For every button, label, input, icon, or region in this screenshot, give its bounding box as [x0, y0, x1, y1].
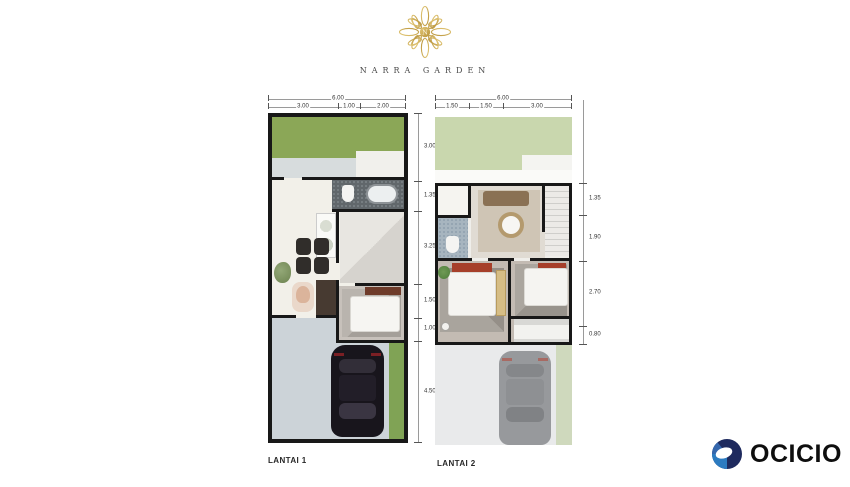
ocicio-logo: OCICIO: [711, 438, 842, 470]
bathtub: [366, 184, 398, 204]
car-windshield: [506, 407, 544, 422]
dining-chair: [314, 257, 329, 274]
wardrobe: [496, 270, 506, 316]
wall: [508, 261, 511, 342]
stairs-area: [340, 212, 404, 283]
sofa: [483, 191, 529, 206]
tick: [469, 103, 470, 109]
plan2-dim-top-3: 3.00: [530, 104, 544, 111]
setback-strip: [435, 170, 572, 183]
dining-chair: [314, 238, 329, 255]
floor-2-building: [435, 183, 572, 345]
tick: [414, 318, 422, 319]
car-roof: [506, 379, 544, 405]
plant: [274, 262, 291, 283]
staircase: [545, 186, 569, 256]
side-garden-strip: [389, 343, 404, 439]
car-taillight: [334, 353, 344, 356]
bathroom-1: [332, 180, 404, 209]
tick: [571, 103, 572, 109]
round-table: [498, 212, 524, 238]
tick: [579, 261, 587, 262]
double-bed: [448, 272, 496, 316]
plan2-dim-right-4: 0.80: [588, 332, 602, 339]
logo-monogram: N: [422, 28, 428, 36]
armchair-cushion: [296, 286, 310, 303]
cabinet: [316, 280, 336, 316]
car-top-view: [331, 345, 384, 437]
floor-1-label: LANTAI 1: [268, 456, 307, 465]
plan2-dim-right-line: [583, 100, 584, 345]
toilet: [446, 236, 459, 253]
tick: [405, 103, 406, 109]
narra-garden-flower-icon: N: [393, 4, 457, 62]
double-bed: [524, 268, 568, 306]
armchair: [292, 282, 314, 312]
stool: [441, 322, 450, 331]
floor-2-label: LANTAI 2: [437, 459, 476, 468]
wall: [272, 315, 296, 318]
ocicio-mark-icon: [711, 438, 743, 470]
tick: [579, 183, 587, 184]
plan2-dim-top-2: 1.50: [479, 104, 493, 111]
roof-notch: [522, 155, 572, 170]
double-bed: [350, 296, 400, 332]
car-roof: [339, 375, 376, 401]
wall: [355, 283, 404, 286]
tick: [579, 344, 587, 345]
tick: [268, 95, 269, 101]
floor-plan-2: [435, 117, 572, 445]
logo-title: NARRA GARDEN: [325, 66, 525, 75]
car-windshield: [339, 403, 376, 419]
tick: [268, 103, 269, 109]
plan1-dim-top-1: 3.00: [296, 104, 310, 111]
plan2-dim-top-1: 1.50: [445, 104, 459, 111]
bathroom-2: [438, 218, 468, 258]
plan1-dim-top-3: 2.00: [376, 104, 390, 111]
car-taillight: [538, 358, 548, 361]
car-taillight: [371, 353, 381, 356]
tick: [414, 181, 422, 182]
tick: [435, 95, 436, 101]
tick: [360, 103, 361, 109]
car-taillight: [502, 358, 512, 361]
tick: [414, 442, 422, 443]
tick: [579, 326, 587, 327]
plan2-dim-right-3: 2.70: [588, 290, 602, 297]
wall: [336, 209, 339, 263]
tick: [405, 95, 406, 101]
plan1-dim-total: 6.00: [331, 96, 345, 103]
plan2-dim-total: 6.00: [496, 96, 510, 103]
tick: [435, 103, 436, 109]
car-rear-window: [506, 364, 544, 377]
plan1-dim-top-2: 1.00: [342, 104, 356, 111]
ghost-car-top-view: [499, 351, 551, 445]
floor-plan-1: [268, 113, 408, 443]
wall: [316, 315, 336, 318]
tick: [571, 95, 572, 101]
tick: [414, 341, 422, 342]
balcony-deck: [514, 325, 569, 339]
tick: [503, 103, 504, 109]
plan1-dim-right-line: [418, 113, 419, 443]
wall: [336, 340, 404, 343]
tick: [414, 211, 422, 212]
tick: [338, 103, 339, 109]
tick: [414, 284, 422, 285]
brand-name: OCICIO: [750, 438, 842, 470]
plan2-dim-right-1: 1.35: [588, 196, 602, 203]
toilet: [342, 185, 354, 202]
floorplan-sheet: N NARRA GARDEN 6.00 3.00 1.00 2.00: [0, 0, 850, 487]
wall: [542, 186, 545, 232]
closet-room: [438, 186, 468, 215]
ghost-garden-strip: [556, 345, 572, 445]
dining-chair: [296, 257, 311, 274]
terrace: [356, 151, 404, 178]
tick: [414, 113, 422, 114]
wall: [272, 177, 284, 180]
dining-chair: [296, 238, 311, 255]
plan2-dim-right-2: 1.90: [588, 235, 602, 242]
headboard: [365, 287, 401, 295]
car-rear-window: [339, 359, 376, 373]
tick: [579, 215, 587, 216]
